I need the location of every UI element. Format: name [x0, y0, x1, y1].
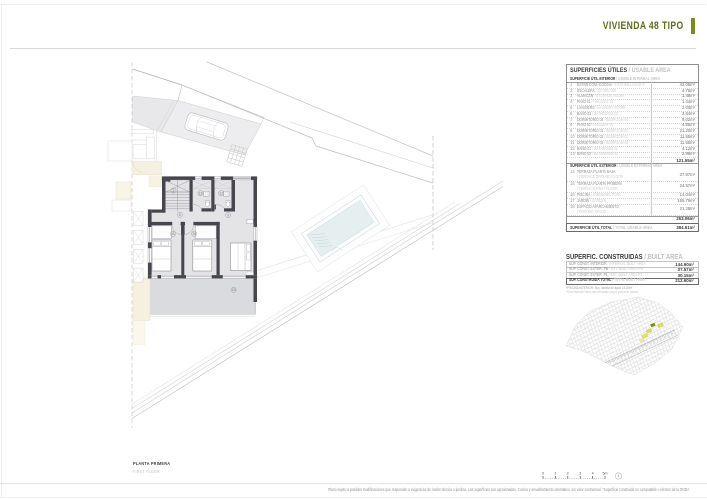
svg-text:10: 10: [192, 232, 196, 236]
svg-text:2: 2: [567, 472, 569, 476]
svg-text:0: 0: [542, 472, 544, 476]
svg-text:5m: 5m: [603, 472, 608, 476]
svg-text:9: 9: [227, 213, 229, 217]
svg-text:15: 15: [232, 288, 236, 292]
svg-text:2: 2: [173, 189, 175, 193]
svg-text:1: 1: [554, 472, 556, 476]
svg-text:4: 4: [592, 472, 594, 476]
svg-text:3: 3: [579, 472, 581, 476]
svg-text:11: 11: [171, 232, 175, 236]
svg-text:12: 12: [219, 191, 223, 195]
svg-text:8: 8: [179, 213, 181, 217]
svg-text:13: 13: [199, 191, 203, 195]
